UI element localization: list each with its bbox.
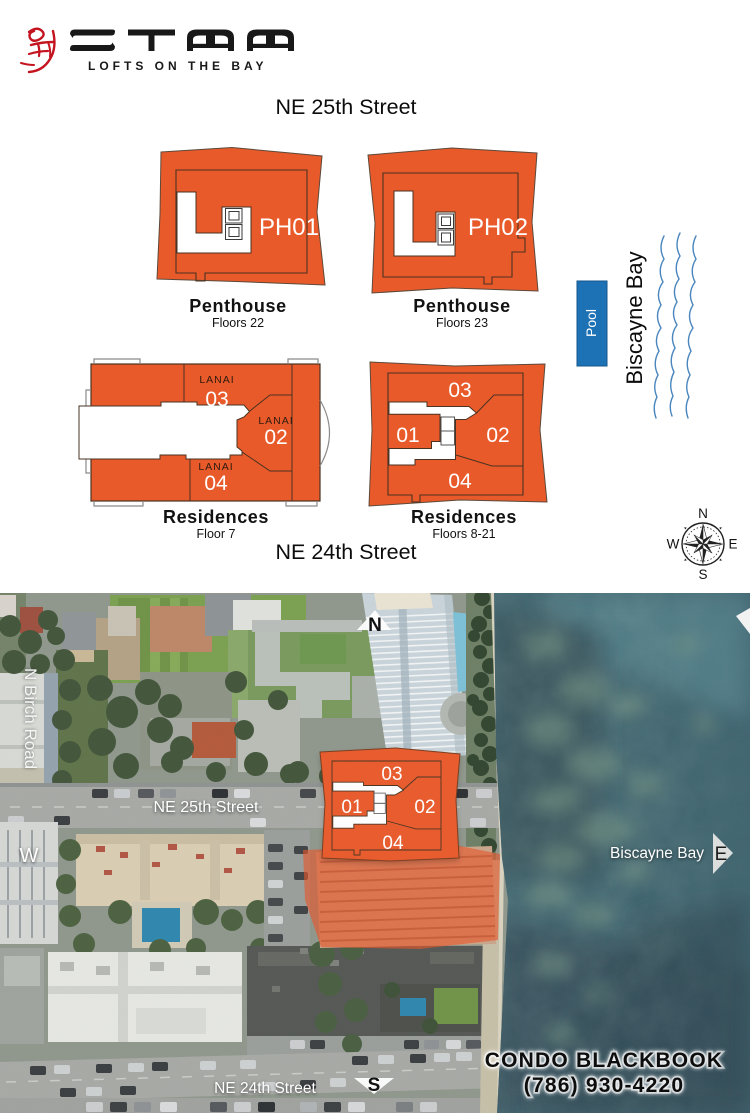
svg-text:Penthouse: Penthouse [413, 296, 510, 316]
svg-text:Biscayne Bay: Biscayne Bay [622, 251, 647, 384]
svg-text:Residences: Residences [163, 507, 269, 527]
svg-text:(786) 930-4220: (786) 930-4220 [524, 1074, 684, 1097]
svg-text:03: 03 [448, 379, 471, 402]
svg-text:Floors 8-21: Floors 8-21 [432, 527, 495, 541]
svg-text:E: E [715, 844, 728, 865]
svg-text:Pool: Pool [583, 309, 599, 337]
svg-text:PH01: PH01 [259, 214, 319, 241]
svg-text:N Birch Road: N Birch Road [21, 668, 40, 769]
svg-text:NE 25th Street: NE 25th Street [275, 95, 416, 119]
svg-text:N: N [698, 506, 708, 521]
svg-text:W: W [667, 537, 680, 552]
svg-text:Penthouse: Penthouse [189, 296, 286, 316]
svg-text:Floors 22: Floors 22 [212, 316, 264, 330]
svg-text:Biscayne Bay: Biscayne Bay [610, 845, 704, 862]
svg-text:Floors 23: Floors 23 [436, 316, 488, 330]
svg-text:E: E [728, 537, 737, 552]
svg-text:LANAI: LANAI [199, 374, 234, 386]
svg-text:02: 02 [486, 424, 509, 447]
svg-text:NE 25th Street: NE 25th Street [154, 799, 260, 816]
svg-text:PH02: PH02 [468, 214, 528, 241]
svg-text:NE 24th Street: NE 24th Street [275, 540, 416, 564]
svg-text:Floor 7: Floor 7 [197, 527, 236, 541]
svg-text:01: 01 [396, 424, 419, 447]
svg-text:04: 04 [204, 472, 228, 495]
svg-text:S: S [368, 1075, 381, 1096]
svg-text:Residences: Residences [411, 507, 517, 527]
svg-text:LOFTS ON THE BAY: LOFTS ON THE BAY [88, 59, 268, 73]
svg-text:04: 04 [448, 470, 472, 493]
svg-text:W: W [20, 845, 39, 867]
svg-text:CONDO BLACKBOOK: CONDO BLACKBOOK [485, 1049, 724, 1072]
svg-text:N: N [368, 615, 382, 636]
svg-text:S: S [698, 567, 707, 582]
svg-text:02: 02 [264, 426, 287, 449]
svg-text:03: 03 [205, 388, 228, 411]
svg-text:NE 24th Street: NE 24th Street [214, 1080, 316, 1097]
